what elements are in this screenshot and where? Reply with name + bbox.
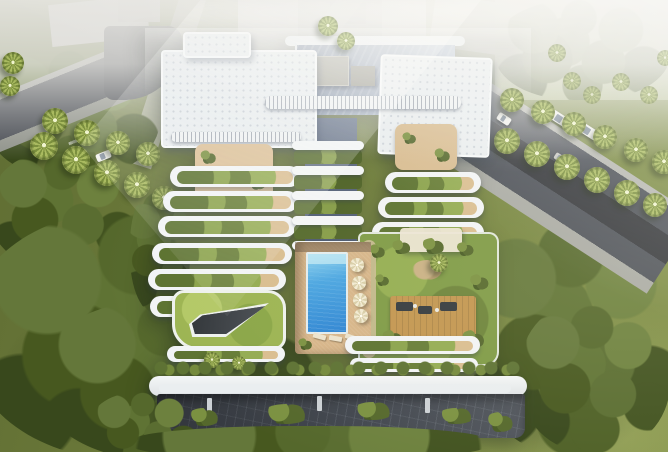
sun-glare-overlay [0, 0, 668, 452]
aerial-render-scene [0, 0, 668, 452]
